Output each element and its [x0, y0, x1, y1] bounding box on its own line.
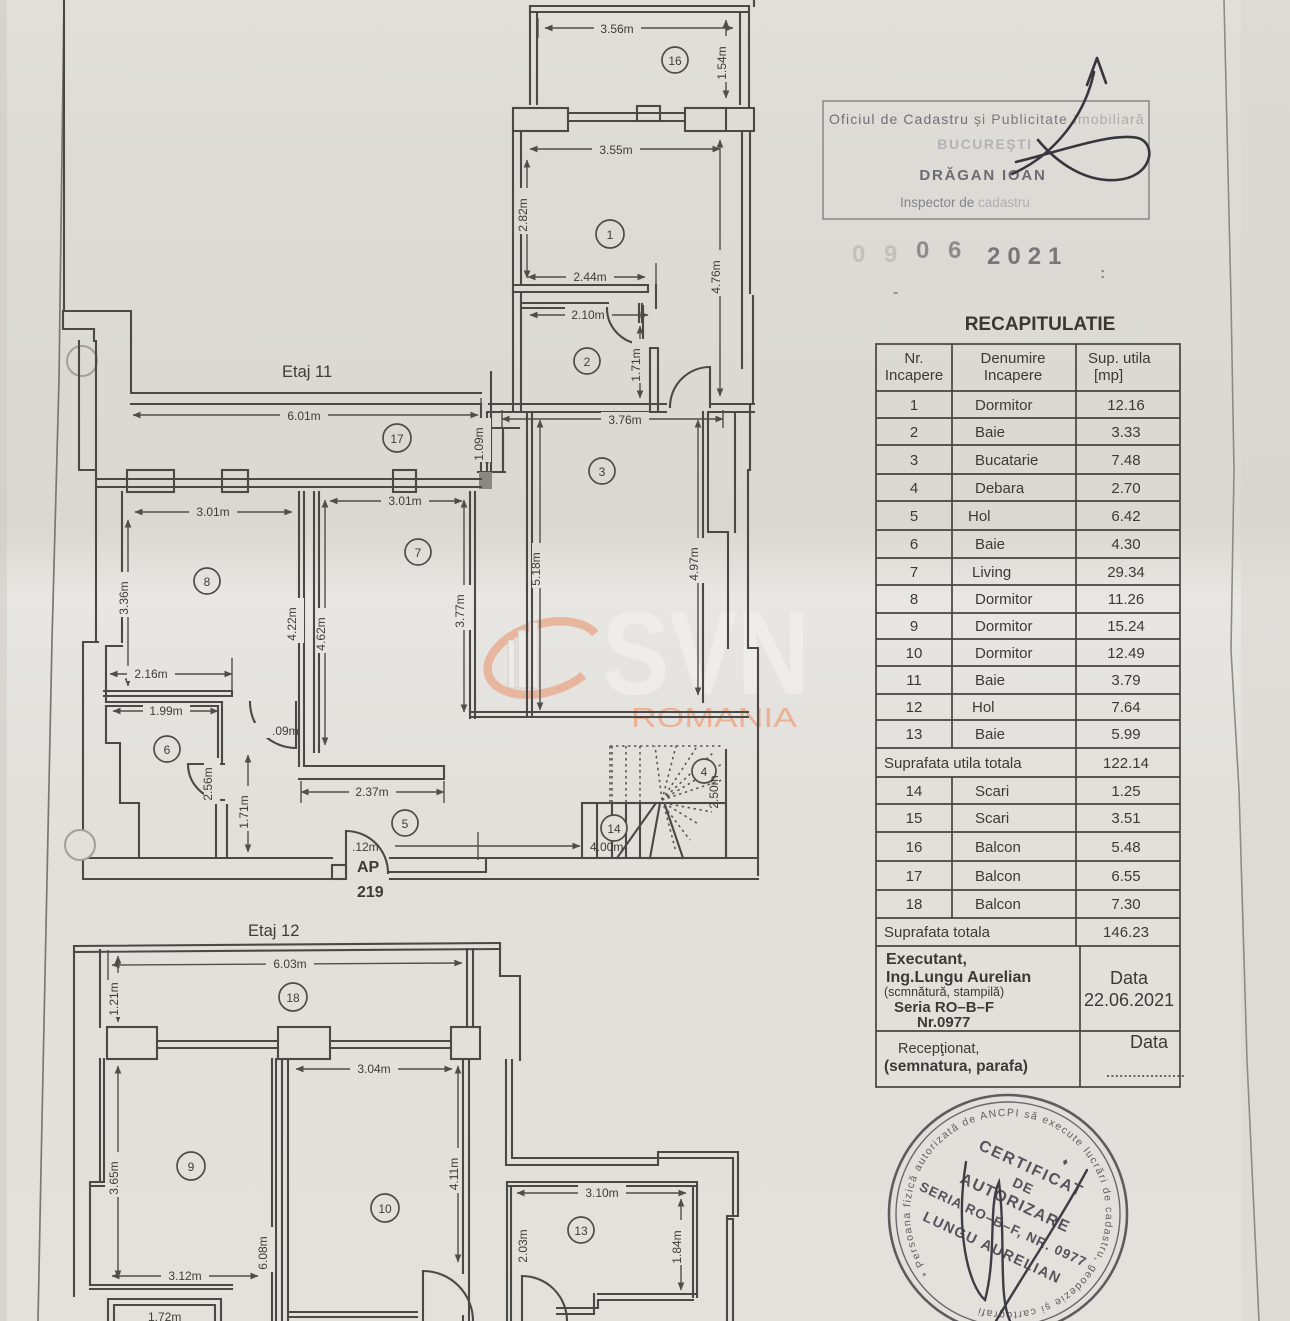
svg-text:.12m: .12m — [352, 840, 379, 854]
svg-text:.09m: .09m — [272, 724, 299, 738]
svg-text:Dormitor: Dormitor — [975, 591, 1033, 608]
svg-text:5.99: 5.99 — [1111, 726, 1140, 743]
svg-text:1.71m: 1.71m — [237, 795, 251, 828]
svg-text:Denumire: Denumire — [980, 350, 1045, 367]
svg-text:10: 10 — [906, 645, 923, 662]
svg-text:1: 1 — [607, 228, 614, 242]
svg-text:Hol: Hol — [972, 699, 995, 716]
svg-text:6.01m: 6.01m — [287, 409, 320, 423]
svg-text:Scari: Scari — [975, 783, 1009, 800]
svg-text:Dormitor: Dormitor — [975, 397, 1033, 414]
svg-text:Hol: Hol — [968, 508, 991, 525]
svg-text:2: 2 — [910, 424, 918, 441]
svg-text:4.97m: 4.97m — [687, 547, 701, 580]
svg-text:Incapere: Incapere — [984, 367, 1042, 384]
svg-text:12.16: 12.16 — [1107, 397, 1145, 414]
svg-text:Dormitor: Dormitor — [975, 618, 1033, 635]
svg-text:1.72m: 1.72m — [148, 1310, 181, 1321]
svg-text:Recepţionat,: Recepţionat, — [898, 1041, 979, 1057]
svg-text:14: 14 — [906, 783, 923, 800]
svg-text:9: 9 — [910, 618, 918, 635]
svg-text:Balcon: Balcon — [975, 868, 1021, 885]
svg-text:2.44m: 2.44m — [573, 270, 606, 284]
svg-text:18: 18 — [906, 896, 923, 913]
svg-text:2.82m: 2.82m — [516, 198, 530, 231]
svg-text:Balcon: Balcon — [975, 896, 1021, 913]
svg-text:3: 3 — [910, 452, 918, 469]
svg-text:29.34: 29.34 — [1107, 564, 1145, 581]
svg-text:3.51: 3.51 — [1111, 810, 1140, 827]
svg-text:15: 15 — [906, 810, 923, 827]
svg-text:4.22m: 4.22m — [285, 607, 299, 640]
svg-text:8: 8 — [910, 591, 918, 608]
svg-text:7: 7 — [910, 564, 918, 581]
svg-text:16: 16 — [906, 839, 923, 856]
svg-text:11: 11 — [906, 672, 922, 689]
svg-text:5: 5 — [910, 508, 918, 525]
svg-text:3.79: 3.79 — [1111, 672, 1140, 689]
svg-text:5: 5 — [402, 817, 409, 831]
svg-text:3.04m: 3.04m — [357, 1062, 390, 1076]
svg-text:Nr.: Nr. — [904, 350, 923, 367]
svg-text:2.70: 2.70 — [1111, 480, 1140, 497]
svg-text:3.12m: 3.12m — [168, 1269, 201, 1283]
svg-text:(scmnătură, stampilă): (scmnătură, stampilă) — [884, 985, 1004, 999]
svg-text:2.50m: 2.50m — [707, 775, 721, 808]
svg-text:1.09m: 1.09m — [472, 427, 486, 460]
svg-text:6.55: 6.55 — [1111, 868, 1140, 885]
svg-text:22.06.2021: 22.06.2021 — [1084, 990, 1174, 1010]
svg-text:Executant,: Executant, — [886, 951, 967, 968]
svg-text:Incapere: Incapere — [885, 367, 943, 384]
svg-text:5.18m: 5.18m — [529, 552, 543, 585]
svg-text:2.10m: 2.10m — [571, 308, 604, 322]
svg-text:Balcon: Balcon — [975, 839, 1021, 856]
svg-text:5.48: 5.48 — [1111, 839, 1140, 856]
svg-text:4.11m: 4.11m — [447, 1158, 461, 1190]
svg-text:15.24: 15.24 — [1107, 618, 1145, 635]
svg-text:Inspector de cadastru: Inspector de cadastru — [900, 195, 1030, 210]
svg-text:16: 16 — [668, 54, 682, 68]
svg-text:4.00m: 4.00m — [590, 840, 623, 854]
svg-text:6: 6 — [164, 743, 171, 757]
svg-text:3.56m: 3.56m — [600, 22, 633, 36]
svg-text:Baie: Baie — [975, 672, 1005, 689]
svg-text:0 9: 0 9 — [852, 241, 903, 268]
svg-text:3.01m: 3.01m — [388, 494, 421, 508]
svg-text:Oficiul de Cadastru și Publici: Oficiul de Cadastru și Publicitate Imobi… — [829, 111, 1145, 127]
svg-text:3.76m: 3.76m — [608, 413, 641, 427]
svg-text:11.26: 11.26 — [1108, 591, 1144, 608]
svg-text:SVN: SVN — [602, 588, 810, 720]
svg-text:4.62m: 4.62m — [314, 617, 328, 650]
svg-text:14: 14 — [607, 822, 621, 836]
svg-text:AP: AP — [357, 859, 380, 876]
svg-text:Sup. utila: Sup. utila — [1088, 350, 1151, 367]
svg-text:1.84m: 1.84m — [670, 1230, 684, 1263]
svg-text:Nr.0977: Nr.0977 — [917, 1014, 970, 1031]
svg-text:3: 3 — [599, 465, 606, 479]
svg-text:[mp]: [mp] — [1094, 367, 1123, 384]
svg-text:Data: Data — [1130, 1032, 1169, 1052]
svg-text:DRĂGAN IOAN: DRĂGAN IOAN — [919, 167, 1046, 184]
svg-text:12: 12 — [906, 699, 923, 716]
svg-text:4.30: 4.30 — [1111, 536, 1140, 553]
svg-text:219: 219 — [357, 884, 384, 901]
svg-text:2.03m: 2.03m — [516, 1229, 530, 1262]
svg-text:Baie: Baie — [975, 424, 1005, 441]
svg-text:3.01m: 3.01m — [196, 505, 229, 519]
svg-text:Bucatarie: Bucatarie — [975, 452, 1038, 469]
svg-text:Dormitor: Dormitor — [975, 645, 1033, 662]
svg-text:1.71m: 1.71m — [629, 348, 643, 381]
svg-text:Debara: Debara — [975, 480, 1025, 497]
svg-text:3.65m: 3.65m — [107, 1161, 121, 1194]
svg-text:146.23: 146.23 — [1103, 924, 1149, 941]
svg-text:Baie: Baie — [975, 536, 1005, 553]
svg-text:12.49: 12.49 — [1107, 645, 1145, 662]
svg-text:122.14: 122.14 — [1103, 755, 1149, 772]
svg-text:1.25: 1.25 — [1111, 783, 1140, 800]
svg-text:9: 9 — [188, 1160, 195, 1174]
svg-text:2.56m: 2.56m — [201, 767, 215, 800]
svg-text:7.48: 7.48 — [1111, 452, 1140, 469]
svg-text:Suprafata utila totala: Suprafata utila totala — [884, 755, 1022, 772]
svg-text:17: 17 — [390, 432, 404, 446]
svg-text:10: 10 — [378, 1202, 392, 1216]
svg-text:7.64: 7.64 — [1111, 699, 1140, 716]
svg-text:3.55m: 3.55m — [599, 143, 632, 157]
svg-text:17: 17 — [906, 868, 923, 885]
svg-text:3.33: 3.33 — [1111, 424, 1140, 441]
svg-text:1: 1 — [910, 397, 918, 414]
svg-text:1.99m: 1.99m — [149, 704, 182, 718]
svg-text:Living: Living — [972, 564, 1011, 581]
svg-text:Etaj 11: Etaj 11 — [282, 363, 332, 381]
svg-text:7: 7 — [415, 546, 422, 560]
svg-text:8: 8 — [204, 575, 211, 589]
svg-text:Scari: Scari — [975, 810, 1009, 827]
svg-text:18: 18 — [286, 991, 300, 1005]
svg-text:2: 2 — [584, 355, 591, 369]
svg-text:6: 6 — [910, 536, 918, 553]
svg-text:1.54m: 1.54m — [715, 46, 729, 79]
svg-text:6.08m: 6.08m — [256, 1236, 270, 1269]
svg-text:2021: 2021 — [987, 243, 1068, 270]
svg-text:(semnatura, parafa): (semnatura, parafa) — [884, 1058, 1028, 1075]
svg-text:Suprafata totala: Suprafata totala — [884, 924, 991, 941]
svg-text::: : — [1100, 265, 1105, 282]
svg-text:Etaj 12: Etaj 12 — [248, 922, 299, 940]
svg-text:3.77m: 3.77m — [453, 594, 467, 627]
svg-text:1.21m: 1.21m — [107, 982, 121, 1015]
svg-text:0 6: 0 6 — [916, 237, 967, 264]
svg-text:6.03m: 6.03m — [273, 957, 306, 971]
svg-text:4: 4 — [910, 480, 918, 497]
svg-text:Data: Data — [1110, 968, 1149, 988]
svg-text:3.10m: 3.10m — [585, 1186, 618, 1200]
svg-text:2.16m: 2.16m — [134, 667, 167, 681]
svg-text:13: 13 — [574, 1224, 588, 1238]
svg-text:BUCUREŞTI: BUCUREŞTI — [937, 136, 1032, 152]
svg-text:4.76m: 4.76m — [709, 260, 723, 293]
svg-text:7.30: 7.30 — [1111, 896, 1140, 913]
svg-text:-: - — [893, 284, 898, 301]
svg-text:2.37m: 2.37m — [355, 785, 388, 799]
svg-text:6.42: 6.42 — [1111, 508, 1140, 525]
svg-text:RECAPITULATIE: RECAPITULATIE — [965, 314, 1116, 335]
svg-text:Ing.Lungu Aurelian: Ing.Lungu Aurelian — [886, 969, 1031, 986]
svg-text:13: 13 — [906, 726, 923, 743]
svg-text:Baie: Baie — [975, 726, 1005, 743]
svg-text:3.36m: 3.36m — [117, 581, 131, 614]
